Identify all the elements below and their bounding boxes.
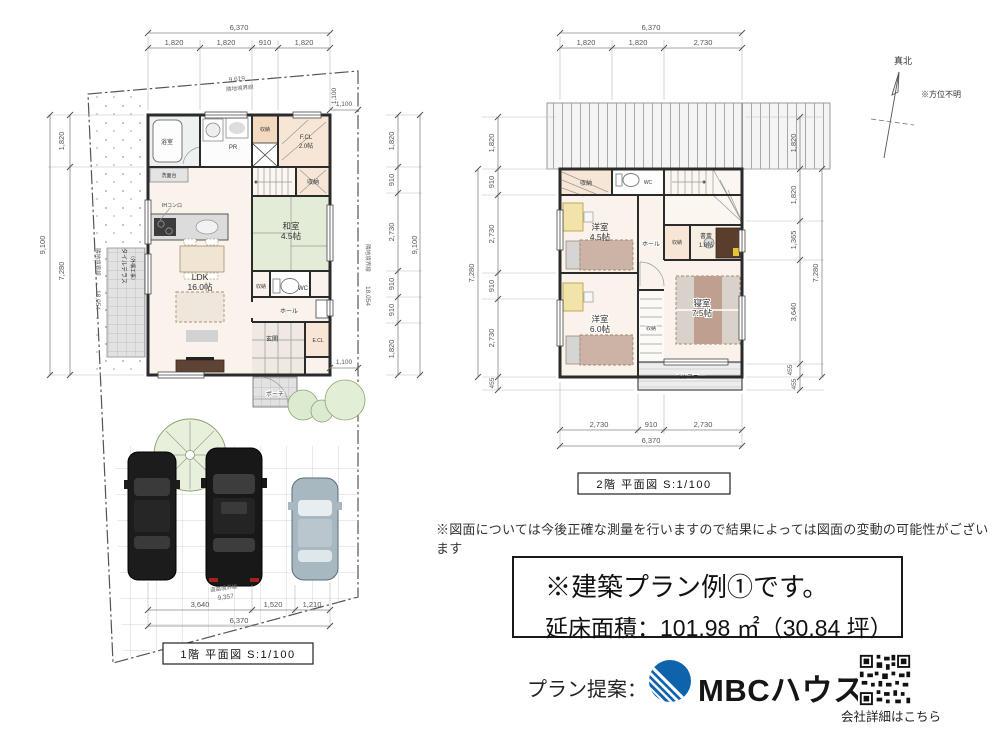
ecl-label: E.CL [312,338,323,344]
car-1 [124,452,180,580]
dim: 455 [489,377,496,388]
dim: 2,730 [590,420,609,429]
dim: 910 [645,420,658,429]
dim: 910 [387,278,396,291]
study-label: 書斎 [700,232,712,240]
porch-label: ポーチ [266,390,284,398]
dim: 910 [387,174,396,187]
dim: 1,820 [789,134,798,153]
caption-1f: 1階 平面図 S:1/100 [163,643,313,664]
fcl-size: 2.0帖 [299,142,313,150]
closet-stair-label: 収納 [307,178,319,186]
closet-top-label: 収納 [260,126,270,133]
dim-1f-top-total: 6,370 [230,23,249,32]
logo-globe [649,660,691,702]
caption-1f-text: 1階 平面図 S:1/100 [180,647,295,661]
dim: 910 [387,304,396,317]
floorplan-sheet: タイルテラス （外構工事） [0,0,1000,750]
vanity-label: 洗面台 [161,172,176,179]
north-label: 真北 [894,55,912,66]
hall-opening [249,302,255,318]
dim: 2,730 [487,329,496,348]
dim: 7,280 [57,262,66,281]
car-3 [288,478,342,580]
dim: 1,820 [387,340,396,359]
dim: 455 [787,364,794,375]
dim-offset-b: 1,100 [331,87,338,104]
closet-2f-top-label: 収納 [580,179,592,187]
caption-2f: 2階 平面図 S:1/100 [578,473,730,494]
closet-mid-label: 収納 [672,239,682,246]
car-2 [201,448,267,586]
roof-2f [547,103,830,169]
yo45-label: 洋室 [591,222,609,232]
tile-terrace: タイルテラス （外構工事） [107,248,145,357]
dim-2f-left-total: 7,280 [467,264,476,283]
ldk-label: LDK [192,272,209,282]
fcl-label: F.CL [300,135,313,141]
washitsu-label: 和室 [282,221,300,231]
dim-offset-c: 1,100 [336,359,353,366]
qr-code [858,653,912,707]
bedroom-size: 7.5帖 [692,308,713,318]
dim: 910 [259,38,272,47]
yo45-size: 4.5帖 [590,232,611,242]
site-top-len: 9,619 [228,75,245,83]
dim: 1,365 [789,231,798,250]
dim: 1,820 [387,132,396,151]
wc-toilet-2f [616,174,639,187]
ldk-size: 16.0帖 [187,282,213,292]
dim: 1,820 [295,38,314,47]
plan-info-box: ※建築プラン例①です。 延床面積：101.98 ㎡（30.84 坪） [512,556,903,638]
dim: 1,820 [165,38,184,47]
plan-1f: タイルテラス （外構工事） [38,23,423,664]
dim-1f-right-total: 9,100 [410,236,419,255]
genkan-label: 玄関 [266,335,278,343]
dim: 1,820 [629,38,648,47]
dim: 1,210 [303,600,322,609]
wc-2f-label: WC [644,180,653,186]
dim: 2,730 [694,38,713,47]
dim: 1,520 [264,600,283,609]
dim-offset-a: 1,100 [336,101,353,108]
plan-2f: バルコニー [467,23,830,494]
pr-label: PR [229,145,238,151]
closet-low-label: 収納 [646,325,656,332]
dim: 2,730 [694,420,713,429]
dim: 1,820 [789,186,798,205]
dim: 1,820 [57,132,66,151]
wc-label: WC [298,286,309,292]
dim: 910 [487,176,496,189]
qr-caption: 会社詳細はこちら [836,706,946,725]
compass-note: ※方位不明 [921,89,961,99]
north-arrow-line [884,72,899,158]
plan-proposal-label: プラン提案： [527,673,647,702]
caption-2f-text: 2階 平面図 S:1/100 [596,477,711,491]
dim: 1,820 [217,38,236,47]
dim: 455 [791,378,798,389]
ih-label: IHコンロ [162,203,182,209]
bedroom-label: 寝室 [693,298,711,308]
dim-2f-top-total: 6,370 [642,23,661,32]
dim: 1,820 [577,38,596,47]
closet-hall-label: 収納 [256,283,266,290]
dim: 2,730 [387,223,396,242]
terrace-label-2: （外構工事） [129,253,136,283]
bath-label: 浴室 [161,138,173,146]
compass-crossbar [871,119,914,125]
site-right-name: 隣地境界線 [364,244,372,272]
study-size: 1.8帖 [699,241,713,249]
dim: 3,640 [789,303,798,322]
yo60-size: 6.0帖 [590,324,611,334]
mbc-logo [648,659,692,703]
site-left-name: 隣地境界線 [94,248,102,276]
hall-label: ホール [280,308,298,315]
dim-1f-bottom-total: 6,370 [230,616,249,625]
yo60-label: 洋室 [591,314,609,324]
compass: 真北 ※方位不明 [871,55,961,158]
site-right-len: 18,054 [364,286,371,306]
terrace-label: タイルテラス [120,248,128,284]
plan-example-title: ※建築プラン例①です。 [545,567,901,604]
dim-2f-right-total: 7,280 [811,264,820,283]
dim: 3,640 [191,600,210,609]
dim-2f-bottom-total: 6,370 [642,436,661,445]
dim-1f-left-total: 9,100 [38,236,47,255]
dim: 910 [487,280,496,293]
floor-area-text: 延床面積：101.98 ㎡（30.84 坪） [545,609,901,643]
site-left-len: 18,054 [94,290,101,310]
dim: 2,730 [487,225,496,244]
washitsu-size: 4.5帖 [281,231,302,241]
dim: 1,820 [487,134,496,153]
brand-name: MBCハウス [698,665,865,710]
disclaimer-text: ※図面については今後正確な測量を行いますので結果によっては図面の変動の可能性がご… [436,519,1000,557]
hall-2f-label: ホール [642,241,660,248]
